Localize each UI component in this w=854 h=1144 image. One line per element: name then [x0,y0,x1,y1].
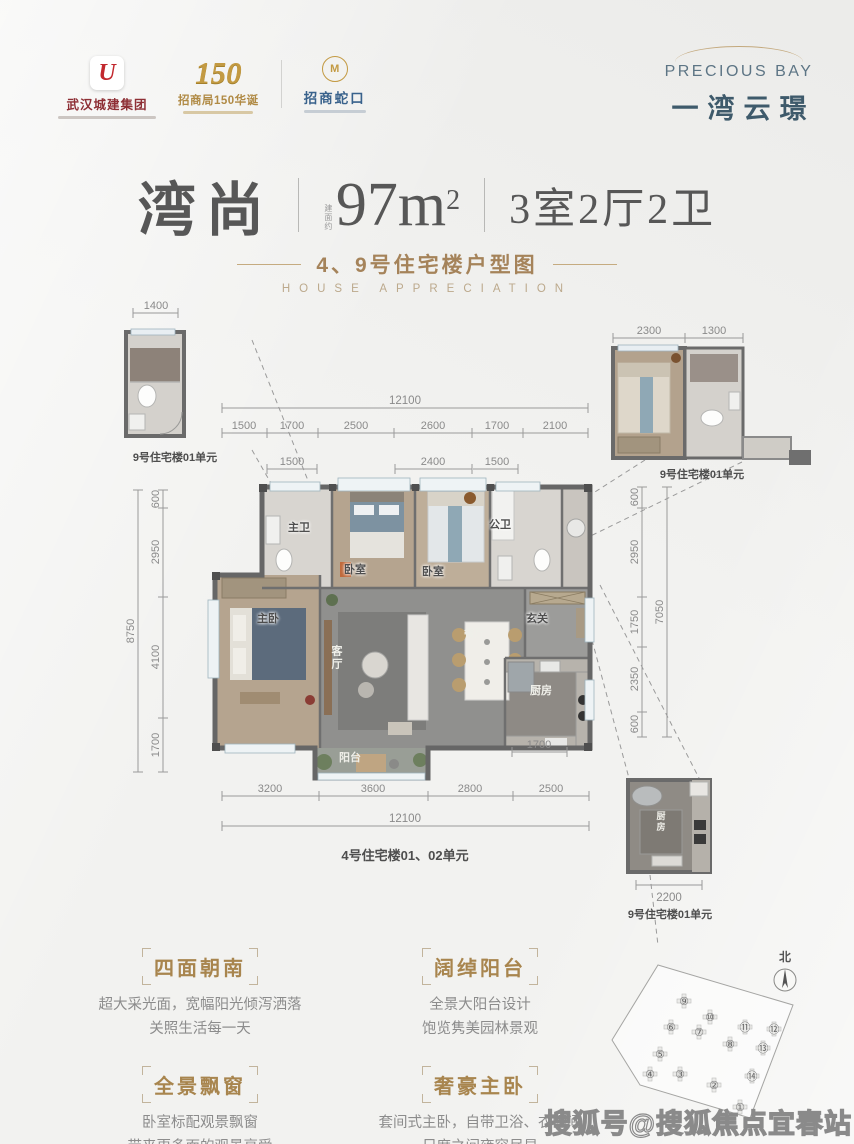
dim-bottom-3: 2500 [539,783,563,795]
feature-list: 四面朝南 超大采光面，宽幅阳光倾泻洒落关照生活每一天 阔绰阳台 全景大阳台设计饱… [60,948,620,1144]
cm-150-icon: 150 [195,56,242,90]
room-label-bed1: 卧室 [344,561,366,577]
subtitle-line-left [237,264,301,265]
room-label-bed2: 卧室 [422,563,444,579]
logo-cm-150: 150 招商局150华诞 [178,56,259,114]
dim-top-2: 2500 [344,420,368,432]
siteplan-building: ⑩ [703,1010,717,1024]
poster-page: U 武汉城建集团 150 招商局150华诞 M 招商蛇口 PRECIOUS BA… [0,0,854,1144]
cm-shekou-subcaption [304,110,366,113]
dim-window-1: 2400 [421,456,445,468]
dim-top-4: 1700 [485,420,509,432]
detail-plan-top-left-bath: 1400 9号住宅楼01单元 [126,300,217,464]
dim-detail-topright-b: 1300 [702,325,726,337]
header-logos: U 武汉城建集团 150 招商局150华诞 M 招商蛇口 [58,56,366,119]
dim-top-total: 12100 [389,395,421,407]
dim-detail-bottomright: 2200 [656,892,682,904]
wuhan-logo-subcaption [58,116,156,119]
svg-text:③: ③ [675,1069,685,1081]
svg-text:⑤: ⑤ [655,1049,665,1061]
detail-plan-top-right-bedroom: 2300 1300 9号住宅楼01单元 [613,325,811,481]
dim-left-3: 1700 [150,733,162,757]
detail-topleft-label: 9号住宅楼01单元 [133,450,217,464]
subtitle-row: 4、9号住宅楼户型图 [0,249,854,279]
unit-rooms: 3室2厅2卫 [509,175,716,236]
dim-right-2: 1750 [629,610,641,634]
svg-text:⑥: ⑥ [666,1022,676,1034]
dim-top-5: 2100 [543,420,567,432]
feature-description: 超大采光面，宽幅阳光倾泻洒落关照生活每一天 [60,994,340,1042]
svg-text:⑦: ⑦ [694,1027,704,1039]
dim-bottom-1: 3600 [361,783,385,795]
dim-top-0: 1500 [232,420,256,432]
dim-top-1: 1700 [280,420,304,432]
unit-title-row: 湾尚 建面约 97m 2 3室2厅2卫 [0,163,854,247]
dim-left-total: 8750 [125,619,137,643]
svg-text:④: ④ [645,1069,655,1081]
room-label-kitchen: 厨房 [530,682,552,698]
dim-right-0: 600 [629,488,641,506]
svg-text:⑭: ⑭ [747,1070,758,1083]
room-label-living: 客厅 [328,645,344,671]
cm-shekou-icon: M [322,56,348,82]
svg-text:②: ② [709,1080,719,1092]
dim-right-4: 600 [629,715,641,733]
siteplan-building: ⑥ [664,1020,678,1034]
feature-south-facing: 四面朝南 超大采光面，宽幅阳光倾泻洒落关照生活每一天 [60,948,340,1042]
subtitle-line-right [553,264,617,265]
svg-text:⑬: ⑬ [758,1042,769,1055]
svg-text:⑫: ⑫ [769,1023,780,1036]
brand-arc-decoration [675,46,803,62]
cm-shekou-name: 招商蛇口 [304,87,366,107]
main-plan-unit-label: 4号住宅楼01、02单元 [341,848,468,863]
area-value: 97m [336,170,446,241]
logo-wuhan-construction: U 武汉城建集团 [58,56,156,119]
siteplan-building: ⑤ [653,1047,667,1061]
cm-150-subcaption [183,111,253,114]
unit-name: 湾尚 [138,163,274,247]
feature-balcony: 阔绰阳台 全景大阳台设计饱览隽美园林景观 [340,948,620,1042]
siteplan-building: ⑭ [745,1069,759,1083]
wuhan-logo-name: 武汉城建集团 [66,94,147,113]
room-label-dining: 餐厅 [464,625,486,641]
watermark: 搜狐号@搜狐焦点宜春站 [545,1102,852,1141]
feature-description: 全景大阳台设计饱览隽美园林景观 [340,994,620,1042]
feature-title: 四面朝南 [142,948,258,985]
wuhan-logo-icon: U [90,56,124,90]
siteplan-building: ⑬ [756,1041,770,1055]
dim-bottom-2: 2800 [458,783,482,795]
logo-cm-shekou: M 招商蛇口 [304,56,366,113]
siteplan-building: ③ [673,1067,687,1081]
room-label-entry: 玄关 [526,610,548,626]
brand-name-cn: 一湾云璟 [648,87,830,126]
title-divider [298,178,299,232]
dim-top-3: 2600 [421,420,445,432]
dim-left-1: 2950 [150,540,162,564]
title-divider [484,178,485,232]
room-label-balcony: 阳台 [339,749,361,765]
detail-bottomright-label: 9号住宅楼01单元 [628,907,712,921]
feature-bay-window: 全景飘窗 卧室标配观景飘窗带来更多面的观景享受 [60,1066,340,1144]
dim-window-0: 1500 [280,456,304,468]
feature-description: 卧室标配观景飘窗带来更多面的观景享受 [60,1112,340,1144]
logo-divider [281,60,282,108]
siteplan-boundary [612,965,793,1118]
brand-block: PRECIOUS BAY 一湾云璟 [648,46,830,126]
area-note: 建面约 [323,204,334,231]
dim-left-0: 600 [150,490,162,508]
feature-title: 阔绰阳台 [422,948,538,985]
svg-text:⑪: ⑪ [740,1021,751,1034]
detail-plan-bottom-right-kitchen: 2200 9号住宅楼01单元 [628,780,712,921]
dim-window-2: 1500 [485,456,509,468]
north-label: 北 [779,949,791,964]
area-superscript: 2 [446,185,460,217]
dim-left-2: 4100 [150,645,162,669]
siteplan-building: ④ [643,1067,657,1081]
feature-title: 全景飘窗 [142,1066,258,1103]
subtitle-cn: 4、9号住宅楼户型图 [316,249,537,279]
svg-text:⑧: ⑧ [725,1039,735,1051]
dim-right-1: 2950 [629,540,641,564]
subtitle-en: HOUSE APPRECIATION [0,283,854,295]
brand-name-en: PRECIOUS BAY [648,63,830,81]
room-label-public-bath: 公卫 [489,516,511,532]
feature-title: 奢豪主卧 [422,1066,538,1103]
dim-detail-topright-a: 2300 [637,325,661,337]
dim-right-total: 7050 [654,600,666,624]
dim-detail-topleft: 1400 [144,300,168,312]
room-label-detail-kitchen: 厨房 [655,811,668,833]
svg-text:⑩: ⑩ [705,1012,715,1024]
svg-text:⑨: ⑨ [679,996,689,1008]
siteplan-building: ⑫ [767,1022,781,1036]
room-label-master: 主卧 [257,610,279,626]
dim-bottom-total: 12100 [389,813,421,825]
siteplan-building: ⑨ [677,994,691,1008]
unit-area: 建面约 97m 2 [323,170,460,241]
dim-right-3: 2350 [629,667,641,691]
floorplan-drawing: 1400 9号住宅楼01单元 2300 1300 9号住宅楼01单元 [0,295,854,945]
siteplan-building: ⑦ [692,1025,706,1039]
room-label-master-bath: 主卫 [288,519,310,535]
north-indicator: 北 [774,949,796,991]
siteplan-building: ② [707,1078,721,1092]
cm-150-name: 招商局150华诞 [178,92,259,108]
siteplan-building: ⑪ [738,1020,752,1034]
dim-kitchen: 1700 [527,739,551,751]
detail-topright-label: 9号住宅楼01单元 [660,467,744,481]
dim-bottom-0: 3200 [258,783,282,795]
siteplan-building: ⑧ [723,1037,737,1051]
